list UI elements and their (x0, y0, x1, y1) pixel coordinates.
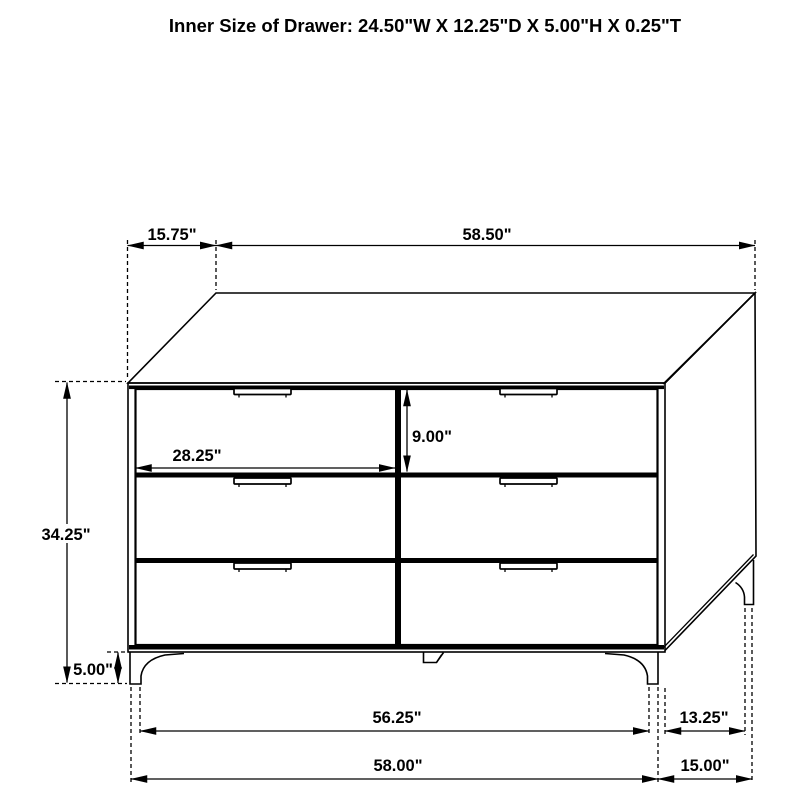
front-left-leg (130, 653, 184, 685)
back-right-leg (736, 560, 754, 605)
dim-overall-width: 58.00" (131, 757, 658, 779)
handle-middle-right (500, 478, 557, 487)
handle-bottom-right (500, 563, 557, 572)
dim-leg-height-label: 5.00" (73, 661, 113, 679)
extension-lines (55, 240, 755, 783)
dim-drawer-height: 9.00" (407, 390, 452, 472)
dresser-front-face (128, 383, 665, 652)
dim-leg-height: 5.00" (73, 653, 118, 684)
drawer-divider-row2 (136, 558, 658, 563)
front-right-leg (605, 653, 658, 685)
dim-overall-depth: 15.00" (658, 757, 752, 779)
dresser-diagram-canvas: Inner Size of Drawer: 24.50"W X 12.25"D … (0, 0, 800, 800)
dim-body-height-label: 34.25" (41, 526, 90, 544)
dim-top-width-label: 58.50" (462, 226, 511, 244)
dim-overall-depth-label: 15.00" (680, 757, 729, 775)
handle-middle-left (234, 478, 291, 487)
handle-top-right (500, 389, 557, 398)
dresser-body (128, 293, 756, 684)
dim-overall-width-label: 58.00" (373, 757, 422, 775)
dim-top-width: 58.50" (216, 226, 755, 246)
dim-drawer-width: 28.25" (136, 447, 396, 468)
center-glide (424, 653, 444, 663)
dresser-side-panel (664, 293, 757, 651)
dim-side-leg-span: 13.25" (665, 709, 745, 731)
diagram-title: Inner Size of Drawer: 24.50"W X 12.25"D … (169, 15, 682, 36)
dim-body-height: 34.25" (36, 383, 96, 683)
furniture-dimension-diagram: Inner Size of Drawer: 24.50"W X 12.25"D … (0, 0, 800, 800)
drawer-divider-row1 (136, 473, 658, 478)
dresser-top-surface (128, 293, 755, 384)
handle-bottom-left (234, 563, 291, 572)
dim-side-leg-span-label: 13.25" (679, 709, 728, 727)
dim-top-depth-label: 15.75" (147, 226, 196, 244)
dim-drawer-width-label: 28.25" (172, 447, 221, 465)
center-divider (395, 389, 401, 645)
dim-front-leg-span: 56.25" (140, 709, 649, 731)
handle-top-left (234, 389, 291, 398)
dresser-legs (130, 560, 754, 684)
dim-top-depth: 15.75" (128, 226, 217, 246)
dim-drawer-height-label: 9.00" (412, 428, 452, 446)
dim-front-leg-span-label: 56.25" (372, 709, 421, 727)
